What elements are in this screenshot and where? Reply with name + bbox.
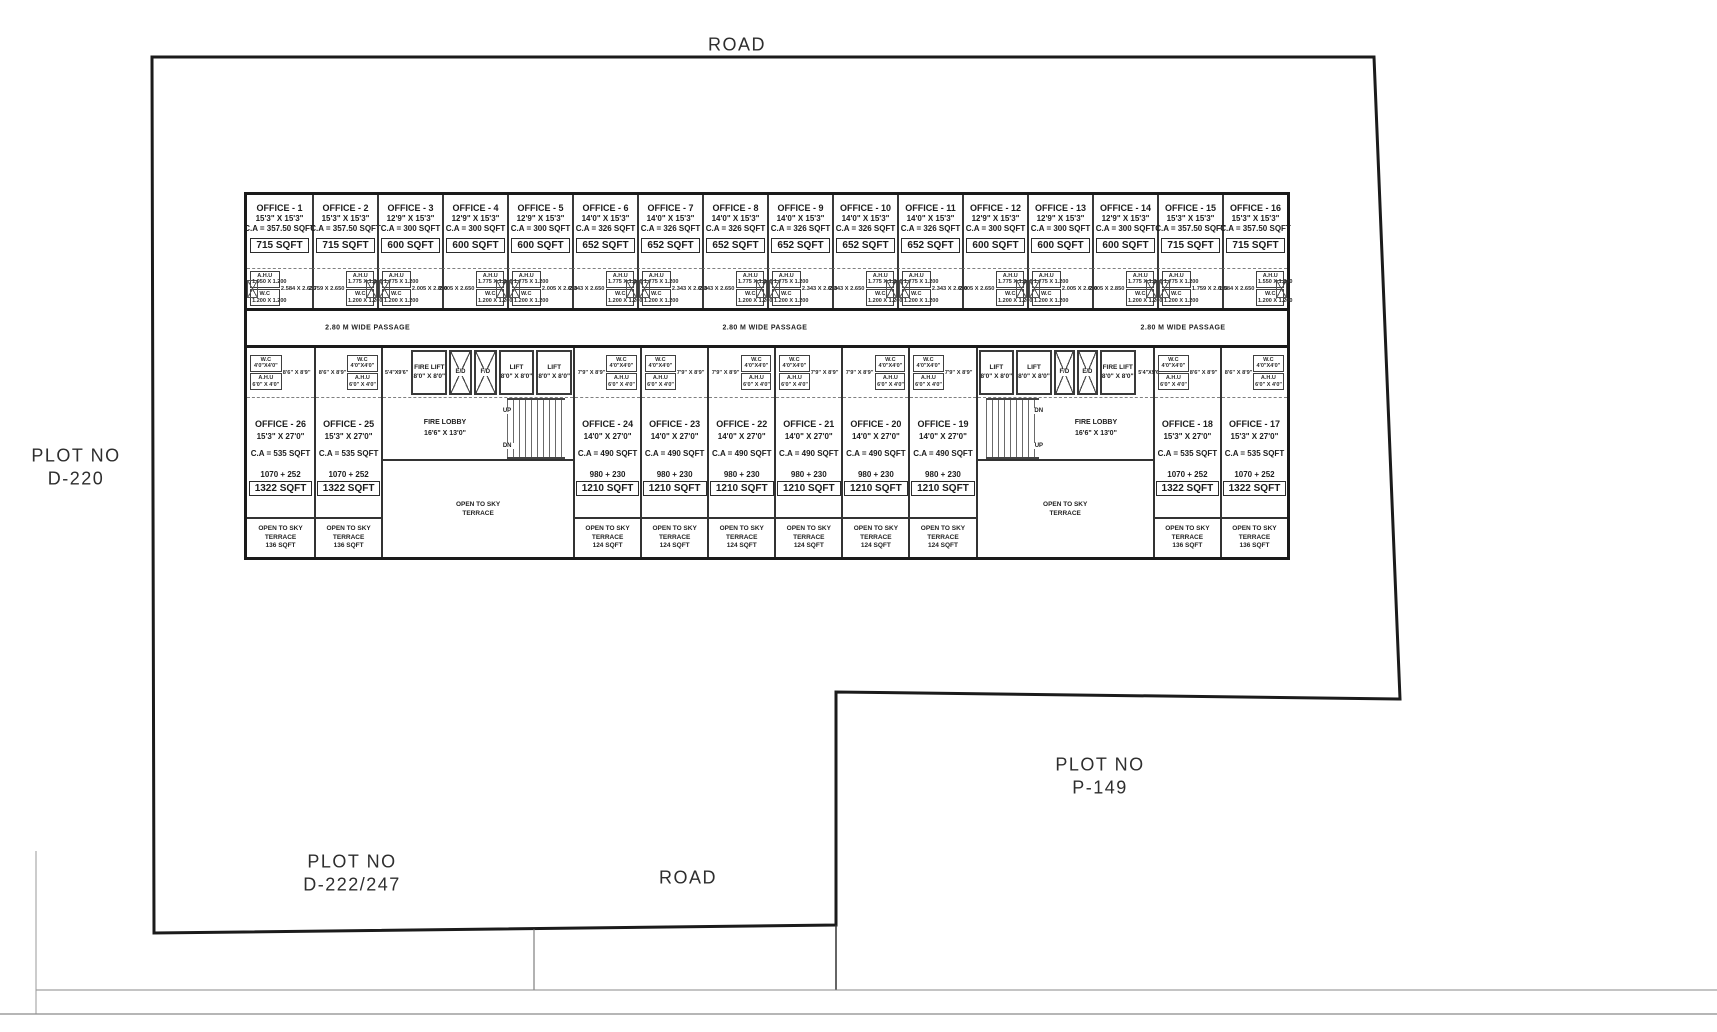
service-boxes: A.H.U 1.775 X 1.200 W.C 1.200 X 1.200 (1032, 271, 1061, 306)
ahu-label: A.H.U (781, 375, 807, 381)
balcony-dim: 2.005 X 2.650 (959, 286, 995, 292)
terrace-line1: OPEN TO SKY (921, 525, 965, 534)
ahu-label: A.H.U (644, 273, 668, 279)
office-size: 15'3" X 15'3" (1232, 214, 1280, 224)
service-cluster: A.H.U 1.775 X 1.200 W.C 1.200 X 1.200 2.… (962, 268, 1027, 308)
office-total-area: 600 SQFT (1096, 238, 1154, 253)
office-text: OFFICE - 24 14'0" X 27'0" C.A = 490 SQFT… (575, 398, 640, 517)
service-boxes: A.H.U 1.775 X 1.200 W.C 1.200 X 1.200 (866, 271, 895, 306)
office-unit: OFFICE - 2 15'3" X 15'3" C.A = 357.50 SQ… (312, 195, 377, 268)
office-size: 12'9" X 15'3" (517, 214, 565, 224)
open-sky-line1: OPEN TO SKY (456, 500, 500, 509)
fire-lift-shaft: FIRE LIFT 8'0" X 8'0" (1100, 350, 1136, 395)
office-carpet-area: C.A = 357.50 SQFT (244, 224, 315, 234)
wc-label: W.C (1164, 291, 1188, 297)
service-cluster: W.C 4'0"X4'0" A.H.U 6'0" X 4'0" 8'6" X 8… (1155, 348, 1220, 398)
service-cluster: A.H.U 1.775 X 1.200 W.C 1.200 X 1.200 2.… (442, 268, 507, 308)
service-cluster: A.H.U 1.775 X 1.200 W.C 1.200 X 1.200 2.… (312, 268, 377, 308)
office-area-split: 980 + 230 (791, 470, 827, 479)
fire-lobby-label: FIRE LOBBY 16'6" X 13'0" (1043, 398, 1149, 459)
office-size: 14'0" X 15'3" (842, 214, 890, 224)
office-size: 14'0" X 15'3" (712, 214, 760, 224)
lift-strip-right: LIFT 8'0" X 8'0" LIFT 8'0" X 8'0" F/D E/… (978, 348, 1153, 398)
office-name: OFFICE - 24 (582, 419, 633, 430)
wc-dim: 4'0"X4'0" (1160, 364, 1186, 370)
office-unit: W.C 4'0"X4'0" A.H.U 6'0" X 4'0" 7'9" X 8… (573, 348, 640, 557)
office-unit: W.C 4'0"X4'0" A.H.U 6'0" X 4'0" 7'9" X 8… (908, 348, 975, 557)
ahu-label: A.H.U (252, 375, 279, 381)
ahu-dim: 1.775 X 1.200 (1128, 280, 1152, 286)
terrace-line1: OPEN TO SKY (652, 525, 696, 534)
wc-label: W.C (916, 357, 942, 363)
ahu-dim: 1.775 X 1.200 (1034, 280, 1058, 286)
ahu-room: A.H.U 1.775 X 1.200 (1162, 271, 1191, 288)
office-unit: OFFICE - 14 12'9" X 15'3" C.A = 300 SQFT… (1092, 195, 1157, 268)
wc-dim: 4'0"X4'0" (1255, 364, 1281, 370)
ahu-room: A.H.U 1.550 X 1.200 (1256, 271, 1285, 288)
office-carpet-area: C.A = 357.50 SQFT (310, 224, 381, 234)
service-boxes: A.H.U 1.775 X 1.200 W.C 1.200 X 1.200 (996, 271, 1025, 306)
office-name: OFFICE - 2 (322, 203, 368, 214)
top-office-row: OFFICE - 1 15'3" X 15'3" C.A = 357.50 SQ… (247, 195, 1287, 268)
ahu-label: A.H.U (514, 273, 538, 279)
wc-room: W.C 1.200 X 1.200 (346, 289, 375, 306)
office-size: 14'0" X 15'3" (907, 214, 955, 224)
office-unit: W.C 4'0"X4'0" A.H.U 6'0" X 4'0" 8'6" X 8… (247, 348, 314, 557)
room-dim: 7'9" X 8'9" (945, 370, 973, 376)
wc-dim: 4'0"X4'0" (916, 364, 942, 370)
wc-dim: 1.200 X 1.200 (608, 298, 632, 304)
ahu-label: A.H.U (1034, 273, 1058, 279)
service-boxes: W.C 4'0"X4'0" A.H.U 6'0" X 4'0" (1253, 355, 1284, 390)
service-cluster: A.H.U 1.775 X 1.200 W.C 1.200 X 1.200 2.… (507, 268, 572, 308)
shaft-side-dim: 5'4"X9'6" (385, 350, 410, 394)
wc-label: W.C (774, 291, 798, 297)
plot-label-p149: PLOT NO P-149 (1055, 754, 1144, 801)
ahu-dim: 6'0" X 4'0" (350, 382, 376, 388)
office-unit: W.C 4'0"X4'0" A.H.U 6'0" X 4'0" 7'9" X 8… (841, 348, 908, 557)
wc-dim: 1.200 X 1.200 (1258, 298, 1282, 304)
lift-dim: 8'0" X 8'0" (1018, 373, 1050, 381)
wc-dim: 4'0"X4'0" (252, 364, 279, 370)
wc-label: W.C (868, 291, 892, 297)
wc-room: W.C 1.200 X 1.200 (996, 289, 1025, 306)
office-name: OFFICE - 13 (1035, 203, 1086, 214)
fire-lobby-left: FIRE LOBBY 16'6" X 13'0" UP DN (383, 398, 573, 461)
office-total-area: 652 SQFT (576, 238, 634, 253)
office-name: OFFICE - 7 (647, 203, 693, 214)
ed-label: E/D (455, 369, 467, 377)
office-unit: OFFICE - 6 14'0" X 15'3" C.A = 326 SQFT … (572, 195, 637, 268)
ahu-label: A.H.U (998, 273, 1022, 279)
balcony-dim: 2.005 X 2.850 (1089, 286, 1125, 292)
room-dim: 7'9" X 8'9" (846, 370, 874, 376)
ahu-dim: 1.775 X 1.200 (1164, 280, 1188, 286)
service-boxes: A.H.U 1.775 X 1.200 W.C 1.200 X 1.200 (606, 271, 635, 306)
terrace-cell: OPEN TO SKY TERRACE 136 SQFT (316, 517, 381, 557)
lobby-block-right: LIFT 8'0" X 8'0" LIFT 8'0" X 8'0" F/D E/… (976, 348, 1153, 557)
ahu-room: A.H.U 1.775 X 1.200 (1032, 271, 1061, 288)
fire-lift-label: FIRE LIFT (414, 364, 444, 372)
office-carpet-area: C.A = 300 SQFT (381, 224, 441, 234)
office-total-area: 652 SQFT (836, 238, 894, 253)
ahu-label: A.H.U (252, 273, 277, 279)
ahu-dim: 1.550 X 1.200 (1258, 280, 1282, 286)
wc-dim: 1.200 X 1.200 (1034, 298, 1058, 304)
service-boxes: A.H.U 1.775 X 1.200 W.C 1.200 X 1.200 (642, 271, 671, 306)
office-carpet-area: C.A = 357.50 SQFT (1155, 224, 1226, 234)
fd-label: F/D (479, 369, 491, 377)
wc-room: W.C 1.200 X 1.200 (736, 289, 765, 306)
ahu-dim: 1.775 X 1.200 (348, 280, 372, 286)
ahu-room: A.H.U 6'0" X 4'0" (250, 373, 282, 390)
balcony-dim: 2.343 X 2.650 (829, 286, 865, 292)
wc-room: W.C 1.200 X 1.200 (250, 289, 280, 306)
ed-duct: E/D (1077, 350, 1098, 395)
service-boxes: A.H.U 1.775 X 1.200 W.C 1.200 X 1.200 (1126, 271, 1155, 306)
stairs: DN UP (986, 398, 1040, 459)
ahu-room: A.H.U 1.775 X 1.200 (772, 271, 801, 288)
office-area-split: 1070 + 252 (1234, 470, 1274, 479)
service-boxes: A.H.U 1.775 X 1.200 W.C 1.200 X 1.200 (346, 271, 375, 306)
office-unit: OFFICE - 12 12'9" X 15'3" C.A = 300 SQFT… (962, 195, 1027, 268)
office-total-area: 600 SQFT (1031, 238, 1089, 253)
wc-room: W.C 1.200 X 1.200 (382, 289, 411, 306)
office-carpet-area: C.A = 490 SQFT (913, 449, 973, 459)
office-carpet-area: C.A = 326 SQFT (576, 224, 636, 234)
office-total-area: 1210 SQFT (576, 481, 640, 496)
service-cluster: A.H.U 1.775 X 1.200 W.C 1.200 X 1.200 2.… (767, 268, 832, 308)
fire-lobby-label: FIRE LOBBY 16'6" X 13'0" (387, 398, 503, 459)
passage-label: 2.80 M WIDE PASSAGE (325, 325, 410, 332)
service-boxes: A.H.U 1.775 X 1.200 W.C 1.200 X 1.200 (736, 271, 765, 306)
wc-room: W.C 1.200 X 1.200 (606, 289, 635, 306)
fd-label: F/D (1059, 369, 1071, 377)
service-cluster: A.H.U 1.775 X 1.200 W.C 1.200 X 1.200 2.… (702, 268, 767, 308)
office-carpet-area: C.A = 490 SQFT (712, 449, 772, 459)
office-name: OFFICE - 1 (256, 203, 302, 214)
fire-lift-dim: 8'0" X 8'0" (1102, 373, 1134, 381)
office-name: OFFICE - 10 (840, 203, 891, 214)
wc-dim: 1.200 X 1.200 (868, 298, 892, 304)
ahu-label: A.H.U (608, 273, 632, 279)
office-area-split: 1070 + 252 (1167, 470, 1207, 479)
wc-room: W.C 4'0"X4'0" (741, 355, 772, 372)
office-area-split: 1070 + 252 (260, 470, 300, 479)
terrace-area: 136 SQFT (1172, 542, 1202, 551)
wc-label: W.C (743, 357, 769, 363)
office-carpet-area: C.A = 300 SQFT (446, 224, 506, 234)
office-total-area: 715 SQFT (1226, 238, 1284, 253)
terrace-line1: OPEN TO SKY (326, 525, 370, 534)
office-name: OFFICE - 22 (716, 419, 767, 430)
lift-dim: 8'0" X 8'0" (981, 373, 1013, 381)
service-boxes: W.C 4'0"X4'0" A.H.U 6'0" X 4'0" (250, 355, 282, 390)
office-total-area: 1322 SQFT (249, 481, 313, 496)
ahu-dim: 1.775 X 1.200 (608, 280, 632, 286)
plot-label-d220-line2: D-220 (31, 468, 120, 491)
wc-label: W.C (350, 357, 376, 363)
plot-label-p149-line2: P-149 (1055, 777, 1144, 800)
plot-label-d220-line1: PLOT NO (31, 445, 120, 468)
open-to-sky-terrace-right: OPEN TO SKY TERRACE (978, 461, 1153, 557)
service-cluster: W.C 4'0"X4'0" A.H.U 6'0" X 4'0" 8'6" X 8… (247, 348, 314, 398)
terrace-line1: OPEN TO SKY (1232, 525, 1276, 534)
office-size: 15'3" X 15'3" (1167, 214, 1215, 224)
road-label-top: ROAD (708, 33, 766, 56)
office-size: 15'3" X 27'0" (1231, 432, 1279, 442)
terrace-line2: TERRACE (1239, 534, 1270, 543)
wc-dim: 1.200 X 1.200 (998, 298, 1022, 304)
service-cluster: A.H.U 1.775 X 1.200 W.C 1.200 X 1.200 2.… (897, 268, 962, 308)
wc-label: W.C (478, 291, 502, 297)
office-name: OFFICE - 15 (1165, 203, 1216, 214)
wc-room: W.C 4'0"X4'0" (913, 355, 944, 372)
wc-label: W.C (608, 291, 632, 297)
ahu-label: A.H.U (1258, 273, 1282, 279)
wc-label: W.C (348, 291, 372, 297)
wc-dim: 4'0"X4'0" (609, 364, 635, 370)
fire-lobby-right: DN UP FIRE LOBBY 16'6" X 13'0" (978, 398, 1153, 461)
wc-dim: 1.200 X 1.200 (738, 298, 762, 304)
road-label-bottom: ROAD (659, 866, 717, 889)
office-total-area: 1210 SQFT (777, 481, 841, 496)
ahu-room: A.H.U 6'0" X 4'0" (913, 373, 944, 390)
wc-dim: 1.200 X 1.200 (478, 298, 502, 304)
ahu-label: A.H.U (609, 375, 635, 381)
terrace-area: 124 SQFT (660, 542, 690, 551)
wc-room: W.C 1.200 X 1.200 (512, 289, 541, 306)
service-cluster: A.H.U 1.775 X 1.200 W.C 1.200 X 1.200 2.… (1092, 268, 1157, 308)
office-size: 15'3" X 27'0" (325, 432, 373, 442)
office-carpet-area: C.A = 326 SQFT (901, 224, 961, 234)
ahu-room: A.H.U 6'0" X 4'0" (1158, 373, 1189, 390)
service-boxes: A.H.U 1.775 X 1.200 W.C 1.200 X 1.200 (382, 271, 411, 306)
service-cluster: W.C 4'0"X4'0" A.H.U 6'0" X 4'0" 7'9" X 8… (575, 348, 640, 398)
office-size: 14'0" X 27'0" (852, 432, 900, 442)
office-total-area: 1210 SQFT (911, 481, 975, 496)
terrace-cell: OPEN TO SKY TERRACE 124 SQFT (575, 517, 640, 557)
wc-dim: 1.200 X 1.200 (1164, 298, 1188, 304)
lift-label: LIFT (510, 364, 524, 372)
service-cluster: A.H.U 1.550 X 1.200 W.C 1.200 X 1.200 1.… (1222, 268, 1287, 308)
ahu-label: A.H.U (348, 273, 372, 279)
terrace-cell: OPEN TO SKY TERRACE 124 SQFT (642, 517, 707, 557)
fire-lift-dim: 8'0" X 8'0" (413, 373, 445, 381)
ahu-label: A.H.U (384, 273, 408, 279)
lower-block: W.C 4'0"X4'0" A.H.U 6'0" X 4'0" 8'6" X 8… (247, 348, 1287, 557)
wc-dim: 1.200 X 1.200 (1128, 298, 1152, 304)
building-outline: OFFICE - 1 15'3" X 15'3" C.A = 357.50 SQ… (244, 192, 1290, 560)
ahu-room: A.H.U 1.775 X 1.200 (382, 271, 411, 288)
office-carpet-area: C.A = 357.50 SQFT (1220, 224, 1291, 234)
office-size: 15'3" X 15'3" (322, 214, 370, 224)
office-size: 14'0" X 27'0" (584, 432, 632, 442)
office-unit: W.C 4'0"X4'0" A.H.U 6'0" X 4'0" 7'9" X 8… (640, 348, 707, 557)
fire-lobby-name: FIRE LOBBY (424, 418, 466, 429)
ahu-label: A.H.U (743, 375, 769, 381)
office-text: OFFICE - 20 14'0" X 27'0" C.A = 490 SQFT… (843, 398, 908, 517)
wc-dim: 1.200 X 1.200 (774, 298, 798, 304)
wc-room: W.C 4'0"X4'0" (779, 355, 810, 372)
office-name: OFFICE - 14 (1100, 203, 1151, 214)
office-carpet-area: C.A = 326 SQFT (641, 224, 701, 234)
balcony-dim: 2.343 X 2.650 (699, 286, 735, 292)
terrace-line1: OPEN TO SKY (854, 525, 898, 534)
office-size: 12'9" X 15'3" (387, 214, 435, 224)
wc-room: W.C 1.200 X 1.200 (902, 289, 931, 306)
service-cluster: A.H.U 1.775 X 1.200 W.C 1.200 X 1.200 2.… (832, 268, 897, 308)
office-total-area: 1210 SQFT (710, 481, 774, 496)
ahu-room: A.H.U 1.775 X 1.200 (346, 271, 375, 288)
stairs-up-label: UP (501, 408, 513, 414)
ahu-label: A.H.U (1164, 273, 1188, 279)
service-cluster: W.C 4'0"X4'0" A.H.U 6'0" X 4'0" 7'9" X 8… (709, 348, 774, 398)
office-name: OFFICE - 6 (582, 203, 628, 214)
terrace-area: 124 SQFT (593, 542, 623, 551)
floor-plan-canvas: ROAD PLOT NO D-220 PLOT NO P-149 PLOT NO… (0, 0, 1717, 1032)
ahu-dim: 1.775 X 1.200 (644, 280, 668, 286)
office-total-area: 1322 SQFT (317, 481, 381, 496)
office-carpet-area: C.A = 490 SQFT (846, 449, 906, 459)
wc-dim: 1.200 X 1.200 (384, 298, 408, 304)
wc-dim: 4'0"X4'0" (743, 364, 769, 370)
office-unit: W.C 4'0"X4'0" A.H.U 6'0" X 4'0" 8'6" X 8… (1220, 348, 1287, 557)
ahu-dim: 6'0" X 4'0" (877, 382, 903, 388)
ed-duct: E/D (449, 350, 472, 395)
office-text: OFFICE - 19 14'0" X 27'0" C.A = 490 SQFT… (910, 398, 975, 517)
terrace-line1: OPEN TO SKY (1165, 525, 1209, 534)
office-area-split: 980 + 230 (724, 470, 760, 479)
office-total-area: 652 SQFT (641, 238, 699, 253)
office-total-area: 715 SQFT (316, 238, 374, 253)
wc-label: W.C (1255, 357, 1281, 363)
terrace-cell: OPEN TO SKY TERRACE 124 SQFT (776, 517, 841, 557)
service-boxes: W.C 4'0"X4'0" A.H.U 6'0" X 4'0" (741, 355, 772, 390)
service-cluster: W.C 4'0"X4'0" A.H.U 6'0" X 4'0" 8'6" X 8… (316, 348, 381, 398)
office-size: 12'9" X 15'3" (1102, 214, 1150, 224)
office-unit: OFFICE - 4 12'9" X 15'3" C.A = 300 SQFT … (442, 195, 507, 268)
room-dim: 7'9" X 8'9" (712, 370, 740, 376)
service-boxes: W.C 4'0"X4'0" A.H.U 6'0" X 4'0" (875, 355, 906, 390)
office-carpet-area: C.A = 300 SQFT (1031, 224, 1091, 234)
wc-label: W.C (252, 291, 277, 297)
wc-dim: 4'0"X4'0" (647, 364, 673, 370)
office-name: OFFICE - 9 (777, 203, 823, 214)
office-unit: W.C 4'0"X4'0" A.H.U 6'0" X 4'0" 8'6" X 8… (314, 348, 381, 557)
office-size: 12'9" X 15'3" (452, 214, 500, 224)
room-dim: 7'9" X 8'9" (578, 370, 606, 376)
office-name: OFFICE - 18 (1162, 419, 1213, 430)
plot-label-p149-line1: PLOT NO (1055, 754, 1144, 777)
office-text: OFFICE - 22 14'0" X 27'0" C.A = 490 SQFT… (709, 398, 774, 517)
passage: 2.80 M WIDE PASSAGE 2.80 M WIDE PASSAGE … (247, 308, 1287, 348)
lift-shaft: LIFT 8'0" X 8'0" (1016, 350, 1052, 395)
terrace-line1: OPEN TO SKY (258, 525, 302, 534)
office-total-area: 652 SQFT (771, 238, 829, 253)
wc-room: W.C 1.200 X 1.200 (772, 289, 801, 306)
office-unit: W.C 4'0"X4'0" A.H.U 6'0" X 4'0" 8'6" X 8… (1153, 348, 1220, 557)
service-boxes: W.C 4'0"X4'0" A.H.U 6'0" X 4'0" (1158, 355, 1189, 390)
ahu-dim: 6'0" X 4'0" (743, 382, 769, 388)
office-name: OFFICE - 12 (970, 203, 1021, 214)
office-name: OFFICE - 3 (387, 203, 433, 214)
service-cluster: A.H.U 1.775 X 1.200 W.C 1.200 X 1.200 2.… (637, 268, 702, 308)
room-dim: 8'6" X 8'9" (1189, 370, 1217, 376)
terrace-area: 124 SQFT (794, 542, 824, 551)
wc-label: W.C (904, 291, 928, 297)
office-carpet-area: C.A = 535 SQFT (1158, 449, 1218, 459)
office-area-split: 980 + 230 (858, 470, 894, 479)
office-name: OFFICE - 26 (255, 419, 306, 430)
passage-label: 2.80 M WIDE PASSAGE (722, 325, 807, 332)
terrace-area: 124 SQFT (928, 542, 958, 551)
lift-dim: 8'0" X 8'0" (501, 373, 533, 381)
office-name: OFFICE - 5 (517, 203, 563, 214)
terrace-line2: TERRACE (1172, 534, 1203, 543)
ahu-dim: 1.775 X 1.200 (738, 280, 762, 286)
office-unit: OFFICE - 10 14'0" X 15'3" C.A = 326 SQFT… (832, 195, 897, 268)
office-total-area: 652 SQFT (901, 238, 959, 253)
service-cluster: W.C 4'0"X4'0" A.H.U 6'0" X 4'0" 7'9" X 8… (642, 348, 707, 398)
service-boxes: A.H.U 1.775 X 1.200 W.C 1.200 X 1.200 (902, 271, 931, 306)
plot-label-d220: PLOT NO D-220 (31, 445, 120, 492)
service-cluster: W.C 4'0"X4'0" A.H.U 6'0" X 4'0" 7'9" X 8… (910, 348, 975, 398)
ahu-room: A.H.U 1.775 X 1.200 (902, 271, 931, 288)
office-carpet-area: C.A = 490 SQFT (578, 449, 638, 459)
service-cluster: W.C 4'0"X4'0" A.H.U 6'0" X 4'0" 7'9" X 8… (776, 348, 841, 398)
wc-label: W.C (781, 357, 807, 363)
terrace-line2: TERRACE (860, 534, 891, 543)
office-carpet-area: C.A = 300 SQFT (966, 224, 1026, 234)
wc-room: W.C 1.200 X 1.200 (1256, 289, 1285, 306)
terrace-line2: TERRACE (659, 534, 690, 543)
wc-room: W.C 4'0"X4'0" (645, 355, 676, 372)
lift-dim: 8'0" X 8'0" (538, 373, 570, 381)
ahu-dim: 1.775 X 1.200 (998, 280, 1022, 286)
office-unit: OFFICE - 9 14'0" X 15'3" C.A = 326 SQFT … (767, 195, 832, 268)
terrace-area: 124 SQFT (861, 542, 891, 551)
service-boxes: A.H.U 1.550 X 1.200 W.C 1.200 X 1.200 (1256, 271, 1285, 306)
terrace-line2: TERRACE (927, 534, 958, 543)
service-boxes: W.C 4'0"X4'0" A.H.U 6'0" X 4'0" (606, 355, 637, 390)
ahu-label: A.H.U (350, 375, 376, 381)
ahu-room: A.H.U 1.950 X 1.200 (250, 271, 280, 288)
office-name: OFFICE - 19 (917, 419, 968, 430)
ahu-dim: 1.775 X 1.200 (514, 280, 538, 286)
wc-label: W.C (609, 357, 635, 363)
office-name: OFFICE - 23 (649, 419, 700, 430)
ahu-dim: 6'0" X 4'0" (609, 382, 635, 388)
office-carpet-area: C.A = 326 SQFT (771, 224, 831, 234)
service-cluster: W.C 4'0"X4'0" A.H.U 6'0" X 4'0" 7'9" X 8… (843, 348, 908, 398)
service-boxes: W.C 4'0"X4'0" A.H.U 6'0" X 4'0" (779, 355, 810, 390)
ahu-dim: 6'0" X 4'0" (647, 382, 673, 388)
ahu-label: A.H.U (1160, 375, 1186, 381)
terrace-line1: OPEN TO SKY (787, 525, 831, 534)
wc-room: W.C 1.200 X 1.200 (1032, 289, 1061, 306)
wc-dim: 1.200 X 1.200 (514, 298, 538, 304)
ahu-room: A.H.U 1.775 X 1.200 (642, 271, 671, 288)
plot-label-d222-line1: PLOT NO (303, 851, 401, 874)
terrace-line2: TERRACE (592, 534, 623, 543)
office-name: OFFICE - 8 (712, 203, 758, 214)
top-service-strip: A.H.U 1.950 X 1.200 W.C 1.200 X 1.200 2.… (247, 268, 1287, 308)
ahu-room: A.H.U 1.775 X 1.200 (996, 271, 1025, 288)
ahu-dim: 6'0" X 4'0" (916, 382, 942, 388)
wc-room: W.C 4'0"X4'0" (1253, 355, 1284, 372)
ahu-dim: 1.950 X 1.200 (252, 280, 277, 286)
